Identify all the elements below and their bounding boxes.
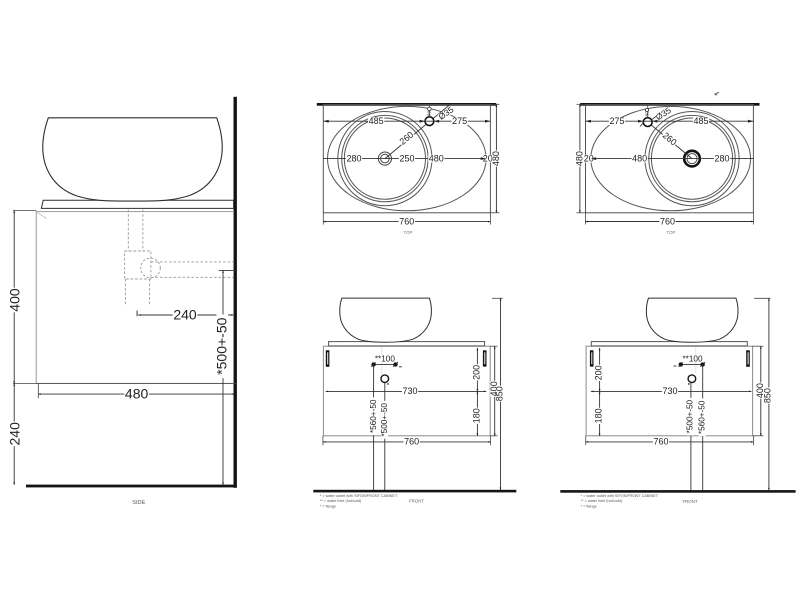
svg-text:200: 200 [594, 365, 604, 380]
svg-text:480: 480 [125, 385, 149, 401]
svg-text:730: 730 [402, 386, 417, 396]
svg-text:400: 400 [6, 288, 22, 312]
svg-text:485: 485 [369, 116, 384, 126]
svg-text:275: 275 [609, 116, 624, 126]
svg-text:*500+-50: *500+-50 [686, 399, 695, 433]
svg-text:180: 180 [594, 408, 604, 423]
svg-text:*500+-50: *500+-50 [380, 403, 389, 437]
svg-text:240: 240 [6, 422, 22, 446]
svg-text:760: 760 [660, 216, 675, 226]
svg-text:FRONT: FRONT [409, 498, 424, 503]
svg-text:480: 480 [574, 151, 584, 166]
svg-text:80: 80 [427, 110, 432, 116]
svg-text:*560+-50: *560+-50 [698, 400, 707, 434]
svg-text:** = water inlet (hot/cold): ** = water inlet (hot/cold) [581, 499, 623, 503]
svg-text:80: 80 [644, 111, 649, 117]
svg-text:**100: **100 [682, 354, 702, 363]
svg-text:485: 485 [693, 116, 708, 126]
svg-text:TOP: TOP [667, 230, 676, 235]
svg-text:760: 760 [653, 437, 668, 447]
svg-text:* = flange: * = flange [320, 504, 336, 508]
svg-text:**100: **100 [375, 354, 395, 363]
svg-text:*500+-50: *500+-50 [214, 317, 230, 374]
svg-text:480: 480 [632, 153, 647, 163]
svg-text:240: 240 [173, 307, 197, 323]
svg-text:TOP: TOP [404, 230, 413, 235]
svg-text:** = water inlet (hot/cold): ** = water inlet (hot/cold) [320, 499, 362, 503]
svg-text:850: 850 [495, 386, 505, 401]
svg-text:200: 200 [471, 365, 481, 380]
svg-text:SIDE: SIDE [132, 500, 145, 506]
svg-text:760: 760 [404, 437, 419, 447]
svg-text:FRONT: FRONT [682, 499, 697, 504]
svg-text:*560+-50: *560+-50 [369, 399, 378, 433]
svg-text:* = water outlet with SIFON/FR: * = water outlet with SIFON/FRONT CABINE… [581, 494, 659, 498]
svg-text:480: 480 [491, 151, 501, 166]
svg-text:280: 280 [346, 153, 361, 163]
svg-text:* = water outlet with SIFON/FR: * = water outlet with SIFON/FRONT CABINE… [320, 494, 398, 498]
svg-text:180: 180 [471, 408, 481, 423]
svg-text:280: 280 [714, 153, 729, 163]
svg-text:760: 760 [399, 216, 414, 226]
svg-text:275: 275 [452, 116, 467, 126]
svg-text:250: 250 [399, 153, 414, 163]
svg-text:850: 850 [762, 388, 772, 403]
svg-text:480: 480 [429, 153, 444, 163]
svg-text:730: 730 [662, 386, 677, 396]
svg-text:* = flange: * = flange [581, 504, 597, 508]
